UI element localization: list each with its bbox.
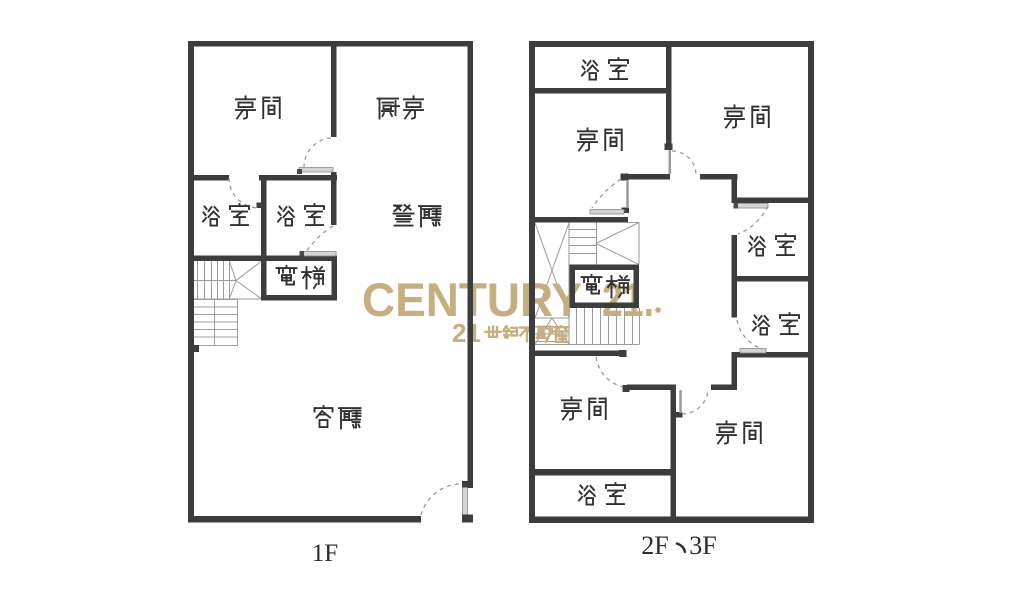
svg-text:2F: 2F [641,531,668,560]
svg-text:21: 21 [452,318,481,348]
svg-text:1F: 1F [312,540,338,567]
svg-text:3F: 3F [689,531,716,560]
